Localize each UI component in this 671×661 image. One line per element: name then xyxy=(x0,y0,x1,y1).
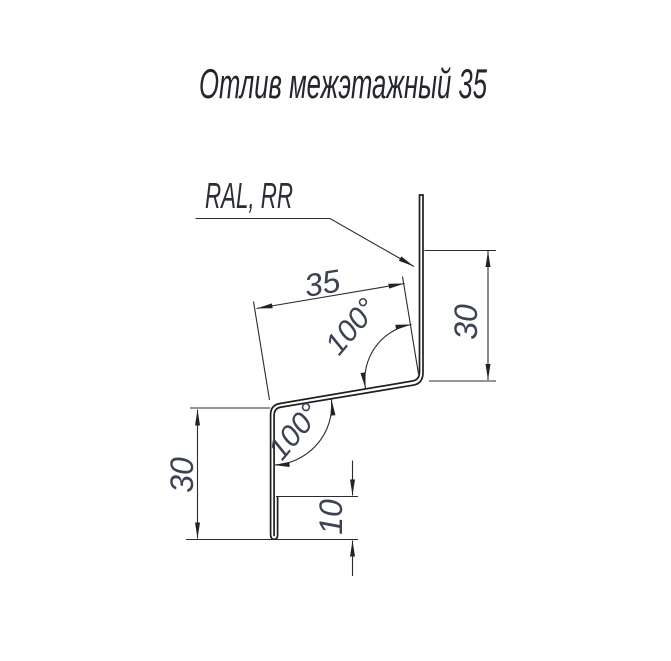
material-callout: RAL, RR xyxy=(196,175,415,267)
dimension-value-35: 35 xyxy=(302,262,343,303)
drawing-canvas: Отлив межэтажный 35 RAL, RR 35 30 xyxy=(0,0,671,661)
profile-inner-surface xyxy=(274,195,423,536)
angle-upper-100: 100° xyxy=(319,293,411,389)
angle-value-upper: 100° xyxy=(319,293,384,362)
dimension-value-30-left: 30 xyxy=(164,457,200,493)
technical-drawing: Отлив межэтажный 35 RAL, RR 35 30 xyxy=(0,0,671,661)
extension-line xyxy=(254,302,270,401)
callout-leader-line xyxy=(196,219,415,267)
dimension-right-30: 30 xyxy=(425,251,497,382)
profile-outline xyxy=(271,195,423,539)
dimension-value-30-right: 30 xyxy=(448,304,484,340)
dimension-hem-10: 10 xyxy=(276,461,358,577)
extension-line xyxy=(403,277,419,375)
profile-outer-surface xyxy=(271,195,420,539)
drawing-title: Отлив межэтажный 35 xyxy=(199,60,487,107)
dimension-value-10: 10 xyxy=(313,499,349,535)
material-label: RAL, RR xyxy=(205,175,293,216)
angle-arc xyxy=(365,325,412,389)
